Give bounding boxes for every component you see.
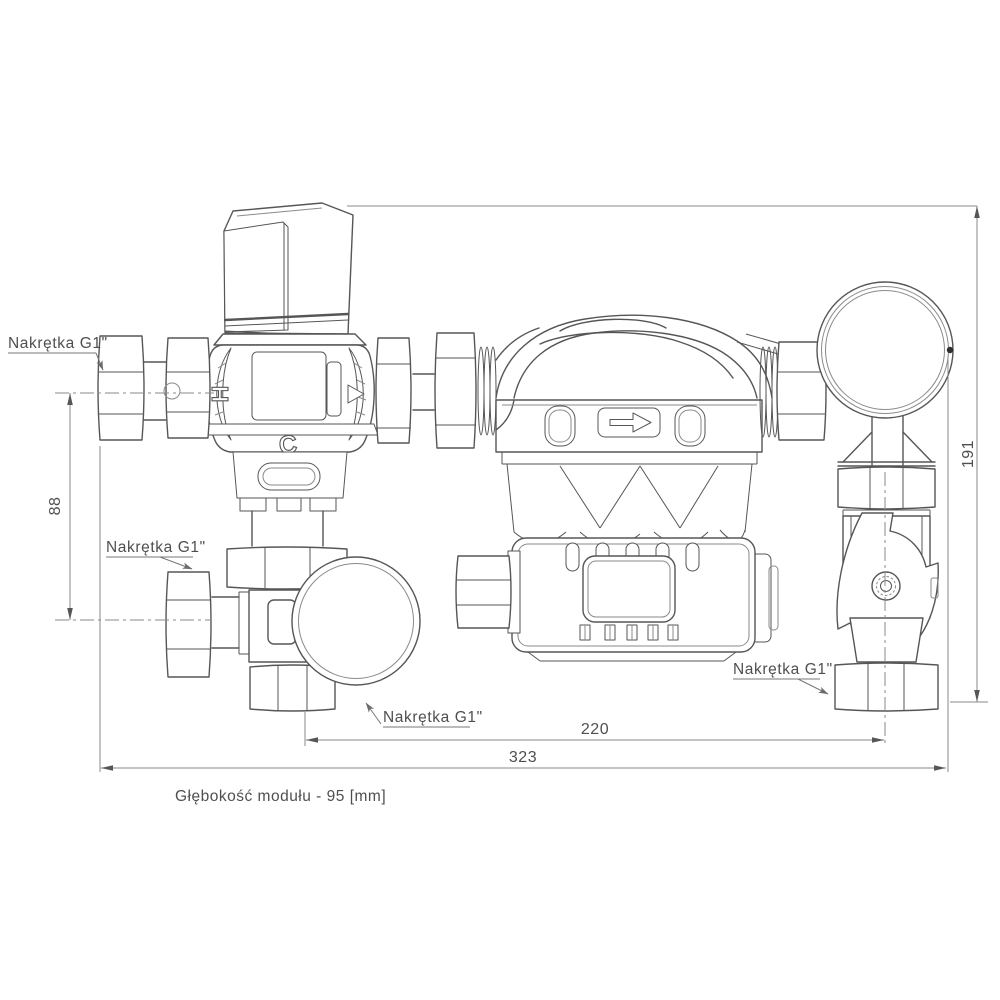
valve-round-handle: [817, 282, 953, 418]
technical-drawing-canvas: H C: [0, 0, 1000, 1000]
handle-index-dot: [947, 347, 953, 353]
dimension-88: 88: [47, 393, 73, 620]
ball-valve-bottom-left: [166, 547, 420, 711]
circulation-pump: [496, 315, 795, 546]
label-nut-mid-left: Nakrętka G1": [106, 539, 206, 569]
valve-round-handle-left: [292, 557, 420, 685]
pump-display-panel: [583, 556, 675, 622]
dimension-220-value: 220: [581, 721, 609, 738]
thermostatic-actuator-knob: [214, 203, 366, 345]
cable-gland-hex: [456, 556, 511, 628]
mixing-valve-body: H C: [202, 345, 378, 546]
label-nut-top-left: Nakrętka G1": [8, 335, 108, 370]
nut-label-text: Nakrętka G1": [383, 709, 483, 726]
pump-group-drawing: H C: [0, 0, 1000, 1000]
pump-control-box: [456, 538, 778, 661]
nut-label-text: Nakrętka G1": [8, 335, 108, 352]
hex-nut-mid-left: [166, 572, 211, 677]
hex-nut-top-left: [98, 336, 210, 440]
label-nut-bottom-right: Nakrętka G1": [733, 661, 833, 694]
module-depth-note: Głębokość modułu - 95 [mm]: [175, 788, 386, 805]
nut-label-text: Nakrętka G1": [733, 661, 833, 678]
hex-nut-bottom-right: [835, 663, 938, 711]
dimension-323-value: 323: [509, 749, 537, 766]
nut-label-text: Nakrętka G1": [106, 539, 206, 556]
label-nut-bottom-center: Nakrętka G1": [366, 703, 483, 727]
dimension-191-value: 191: [960, 440, 977, 468]
ball-valve-right: [817, 282, 953, 711]
hex-nuts-valve-to-pump: [376, 333, 496, 448]
valve-hot-marking: H: [207, 386, 233, 403]
dimension-88-value: 88: [47, 497, 64, 516]
